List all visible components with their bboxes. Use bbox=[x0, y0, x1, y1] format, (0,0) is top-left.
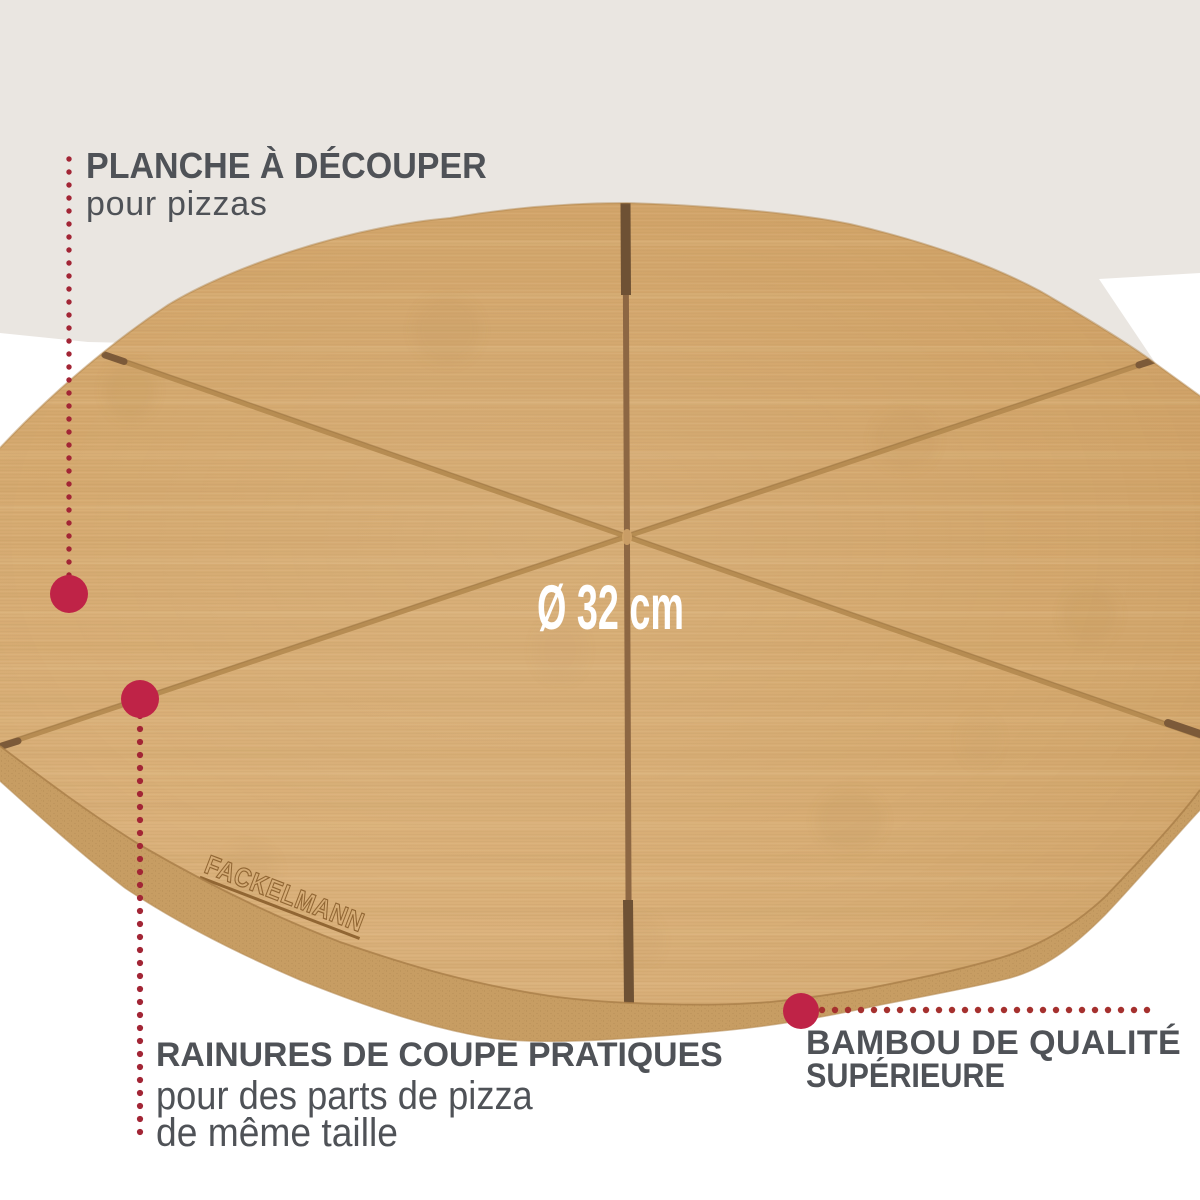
svg-text:Ø 32 cm: Ø 32 cm bbox=[537, 573, 684, 643]
